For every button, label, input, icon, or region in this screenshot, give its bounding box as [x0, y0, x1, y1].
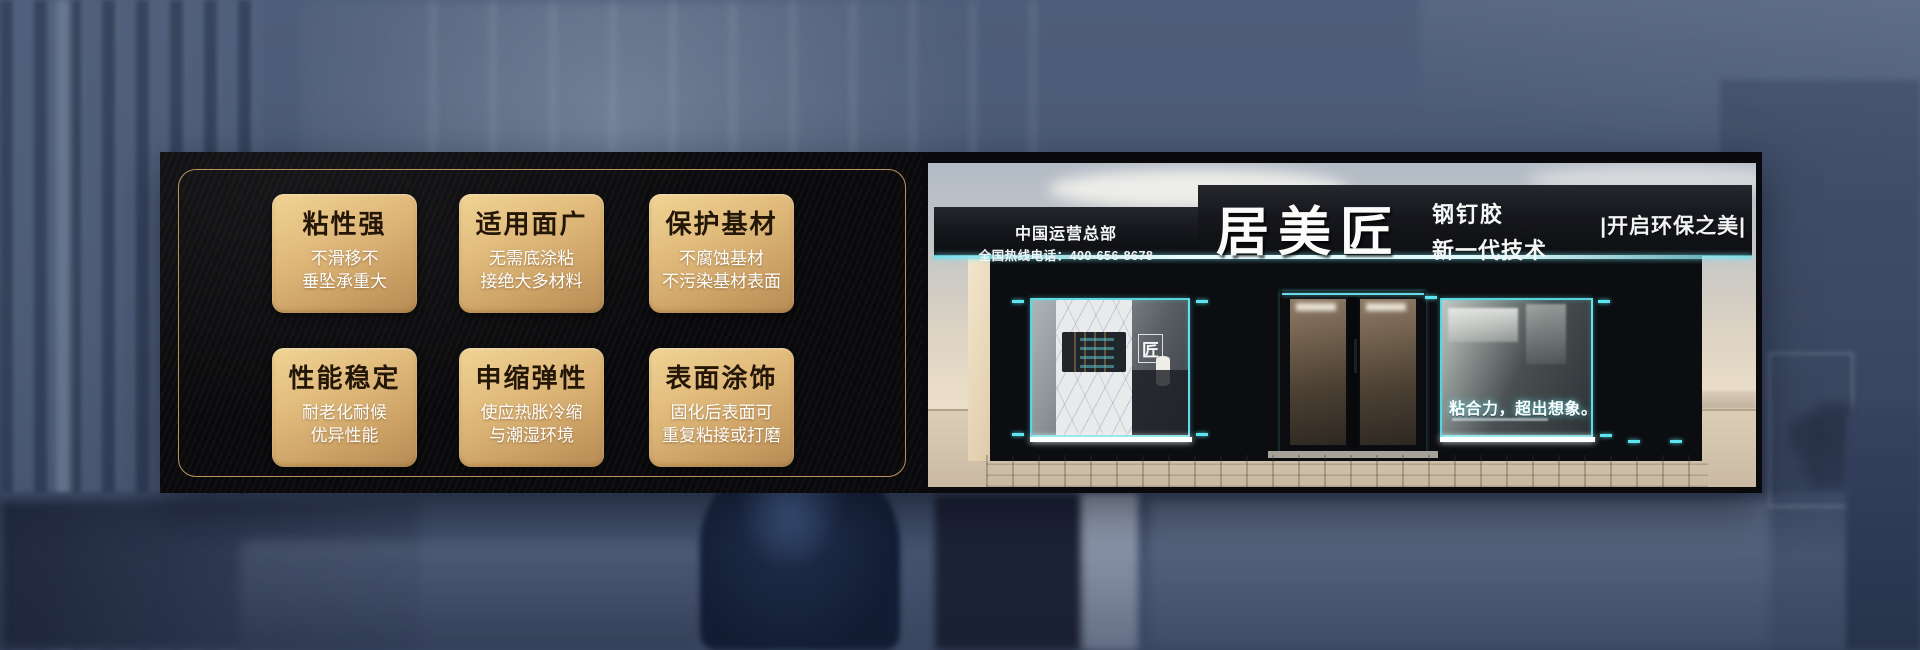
background-dark-box: [935, 495, 1085, 650]
feature-line: 与潮湿环境: [462, 425, 601, 448]
feature-description: 不滑移不 垂坠承重大: [275, 248, 414, 294]
brand-name: 居美匠: [1216, 190, 1402, 266]
display-window-right: 粘合力，超出想象。: [1440, 298, 1593, 437]
led-accent: [1425, 296, 1437, 299]
feature-title: 适用面广: [462, 204, 601, 241]
paved-walkway: [986, 455, 1708, 487]
feature-line: 不腐蚀基材: [652, 248, 791, 271]
window-interior-shadow: [1132, 370, 1190, 437]
feature-title: 申缩弹性: [462, 358, 601, 395]
sign-tagline: |开启环保之美|: [1600, 210, 1746, 240]
brand-subtitle-block: 钢钉胶 新一代技术: [1432, 197, 1547, 265]
feature-card: 保护基材 不腐蚀基材 不污染基材表面: [649, 194, 794, 313]
feature-line: 重复粘接或打磨: [652, 425, 791, 448]
feature-line: 使应热胀冷缩: [462, 402, 601, 425]
led-accent: [1600, 434, 1612, 437]
feature-card: 粘性强 不滑移不 垂坠承重大: [272, 194, 417, 313]
door-handle: [1354, 339, 1357, 373]
window-slogan: 粘合力，超出想象。: [1449, 395, 1593, 419]
feature-line: 接绝大多材料: [462, 271, 601, 294]
product-display-board: [1062, 332, 1126, 372]
led-accent: [1670, 440, 1682, 443]
feature-description: 耐老化耐候 优异性能: [275, 402, 414, 448]
hq-text-block: 中国运营总部 全国热线电话：400-656-8678: [944, 220, 1188, 264]
storefront-photo: 中国运营总部 全国热线电话：400-656-8678 居美匠 钢钉胶 新一代技术…: [928, 163, 1756, 487]
feature-description: 不腐蚀基材 不污染基材表面: [652, 248, 791, 294]
background-cabinet: [1846, 415, 1920, 650]
background-floor-light: [1150, 500, 1770, 650]
feature-card: 适用面广 无需底涂粘 接绝大多材料: [459, 194, 604, 313]
feature-line: 耐老化耐候: [275, 402, 414, 425]
feature-title: 粘性强: [275, 204, 414, 241]
features-panel: 粘性强 不滑移不 垂坠承重大 适用面广 无需底涂粘 接绝大多材料 保护基材 不腐…: [160, 152, 922, 493]
door-led-edge: [1282, 293, 1424, 295]
feature-line: 垂坠承重大: [275, 271, 414, 294]
feature-description: 使应热胀冷缩 与潮湿环境: [462, 402, 601, 448]
tech-label: 新一代技术: [1432, 233, 1547, 265]
feature-card: 表面涂饰 固化后表面可 重复粘接或打磨: [649, 348, 794, 467]
ceiling-light-reflection: [1366, 303, 1406, 311]
background-white-pillar: [1080, 493, 1138, 650]
product-name: 钢钉胶: [1432, 197, 1547, 229]
feature-title: 保护基材: [652, 204, 791, 241]
ceiling-light-reflection: [1296, 303, 1336, 311]
interior-shelf: [1526, 304, 1566, 364]
window-slogan-subtext: [1452, 418, 1548, 421]
hq-title: 中国运营总部: [944, 220, 1188, 244]
led-accent: [1598, 300, 1610, 303]
ad-banner-screenshot: 粘性强 不滑移不 垂坠承重大 适用面广 无需底涂粘 接绝大多材料 保护基材 不腐…: [0, 0, 1920, 650]
feature-title: 表面涂饰: [652, 358, 791, 395]
led-accent: [1628, 440, 1640, 443]
feature-card: 申缩弹性 使应热胀冷缩 与潮湿环境: [459, 348, 604, 467]
window-base-led: [1440, 437, 1595, 442]
led-accent: [1012, 300, 1024, 303]
glass-entrance-door: [1280, 291, 1426, 453]
feature-card: 性能稳定 耐老化耐候 优异性能: [272, 348, 417, 467]
hq-hotline: 全国热线电话：400-656-8678: [944, 245, 1188, 264]
feature-line: 固化后表面可: [652, 402, 791, 425]
led-accent: [1196, 300, 1208, 303]
feature-line: 优异性能: [275, 425, 414, 448]
product-banner: 粘性强 不滑移不 垂坠承重大 适用面广 无需底涂粘 接绝大多材料 保护基材 不腐…: [160, 152, 1762, 493]
feature-title: 性能稳定: [275, 358, 414, 395]
door-leaf: [1360, 299, 1416, 445]
feature-description: 固化后表面可 重复粘接或打磨: [652, 402, 791, 448]
window-base-led: [1030, 437, 1192, 442]
led-accent: [1012, 433, 1024, 436]
door-leaf: [1290, 299, 1346, 445]
interior-cabinet: [1448, 308, 1518, 342]
feature-line: 无需底涂粘: [462, 248, 601, 271]
feature-description: 无需底涂粘 接绝大多材料: [462, 248, 601, 294]
feature-line: 不滑移不: [275, 248, 414, 271]
feature-line: 不污染基材表面: [652, 271, 791, 294]
background-table-blur: [240, 540, 700, 650]
display-window-left: 匠: [1030, 298, 1190, 437]
led-accent: [1196, 433, 1208, 436]
